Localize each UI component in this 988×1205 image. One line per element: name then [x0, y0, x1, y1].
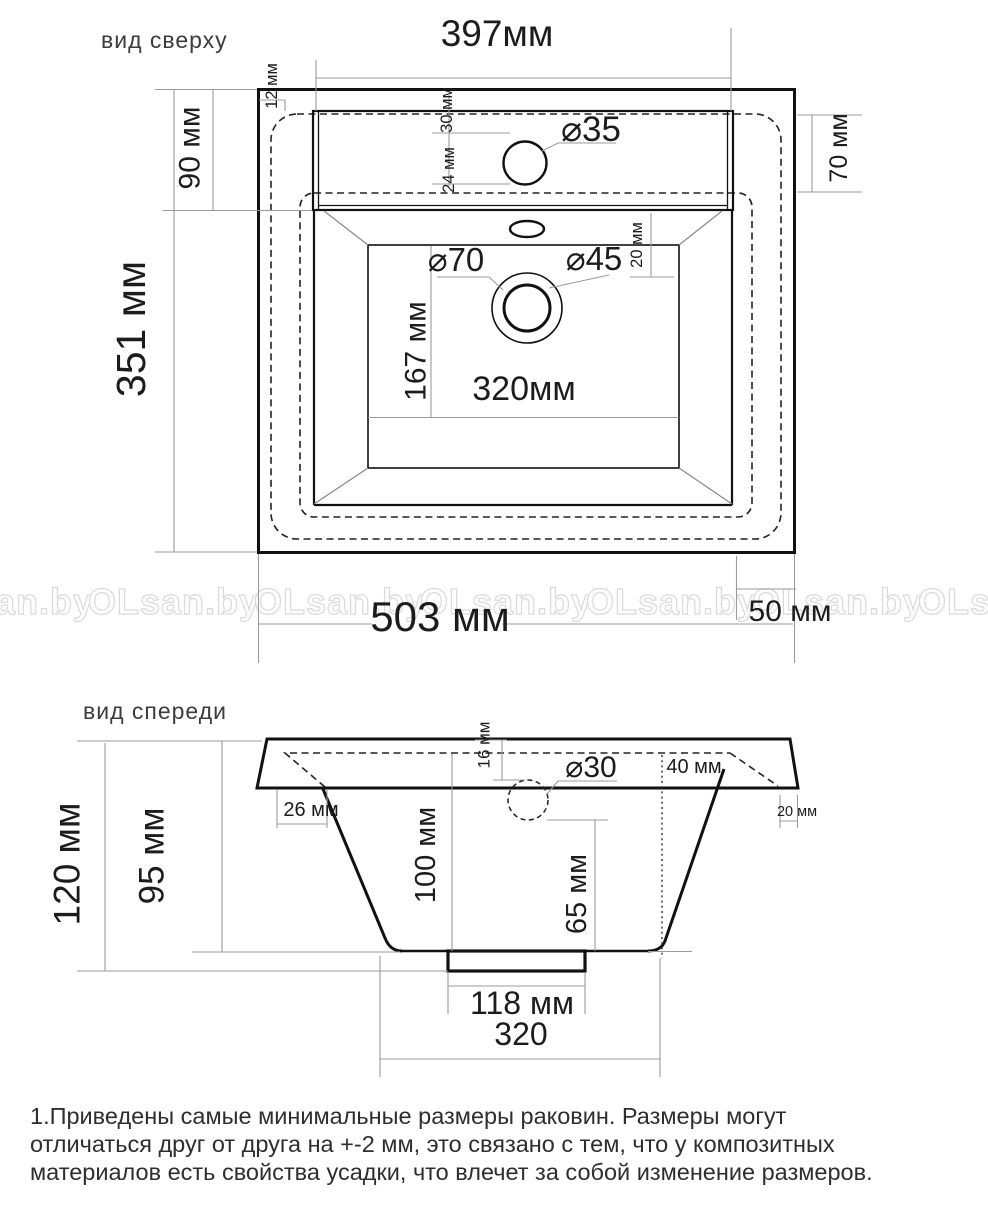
dim-deck-depth: 90 мм [174, 107, 207, 190]
basin-corner-diagonal [679, 211, 722, 245]
dim-overall-depth: 351 мм [108, 261, 154, 397]
drain-outlet [448, 951, 585, 971]
dim-front-basin-depth: 100 мм [410, 807, 442, 903]
top-view-dimensions [155, 28, 862, 663]
front-rim-hidden-line [285, 753, 730, 787]
watermark-text: OLsan.by [918, 581, 988, 622]
footnote-line-2: отличаться друг от друга на +-2 мм, это … [30, 1131, 835, 1157]
front-view-title: вид спереди [83, 698, 227, 724]
watermark-text: OLsan.by [0, 581, 94, 622]
overflow-hole-front [508, 780, 548, 820]
front-wall-right [648, 769, 724, 951]
front-rim-hidden-line-right [730, 753, 778, 786]
watermark-text: OLsan.by [586, 581, 758, 622]
drain-hole-inner [504, 285, 550, 331]
dim-hole-top: 30 мм [438, 87, 456, 133]
dim-overall-width: 503 мм [370, 593, 510, 640]
dim-rim-thickness: 16 мм [475, 721, 494, 768]
tap-hole [504, 142, 547, 185]
basin-corner-diagonal [679, 468, 732, 504]
dim-drain-outer: ⌀70 [428, 241, 485, 278]
dim-basin-width: 320мм [472, 370, 575, 408]
faucet-deck [313, 111, 733, 210]
front-view-labels: вид спереди 120 мм 95 мм 16 мм 26 мм ⌀30… [47, 698, 818, 1052]
footnote: 1.Приведены самые минимальные размеры ра… [30, 1103, 873, 1185]
dim-tap-hole-diameter: ⌀35 [561, 110, 621, 149]
dim-right-inset: 40 мм [666, 756, 721, 778]
dim-overall-height: 120 мм [47, 803, 88, 926]
dim-overhang-right: 50 мм [749, 595, 832, 628]
footnote-line-1: 1.Приведены самые минимальные размеры ра… [30, 1103, 787, 1129]
dim-overflow-diameter: ⌀30 [565, 751, 616, 784]
dim-width-top: 397мм [441, 13, 554, 54]
basin-corner-diagonal [314, 468, 368, 504]
top-view-title: вид сверху [101, 27, 228, 53]
watermark-text: OLsan.by [88, 581, 260, 622]
technical-drawing: OLsan.by OLsan.by OLsan.by OLsan.by OLsa… [0, 0, 988, 1200]
overflow-slot [510, 221, 544, 237]
dim-bottom-width: 320 [494, 1016, 547, 1052]
dim-hole-bottom: 24 мм [440, 147, 458, 193]
dim-basin-offset: 20 мм [628, 222, 646, 268]
dim-body-height: 95 мм [133, 808, 172, 905]
dim-left-inset: 26 мм [283, 799, 338, 821]
front-view-dimensions [77, 740, 798, 1077]
dim-basin-depth: 167 мм [400, 301, 433, 401]
top-view-dashed-contour-outer [271, 114, 781, 539]
basin-corner-diagonal [324, 211, 368, 245]
top-view [259, 90, 795, 553]
leader-drain-outer [437, 277, 503, 290]
footnote-line-3: материалов есть свойства усадки, что вле… [30, 1159, 873, 1185]
dim-drain-inner: ⌀45 [566, 240, 623, 277]
top-view-outer-outline [259, 90, 795, 553]
dim-right-edge: 70 мм [825, 113, 853, 182]
dim-offset-left: 12 мм [263, 63, 281, 109]
dim-right-overhang: 20 мм [777, 804, 817, 820]
dim-overflow-height: 65 мм [561, 854, 593, 934]
top-view-labels: вид сверху 397мм 12 мм 90 мм 30 мм 24 мм… [101, 13, 853, 640]
